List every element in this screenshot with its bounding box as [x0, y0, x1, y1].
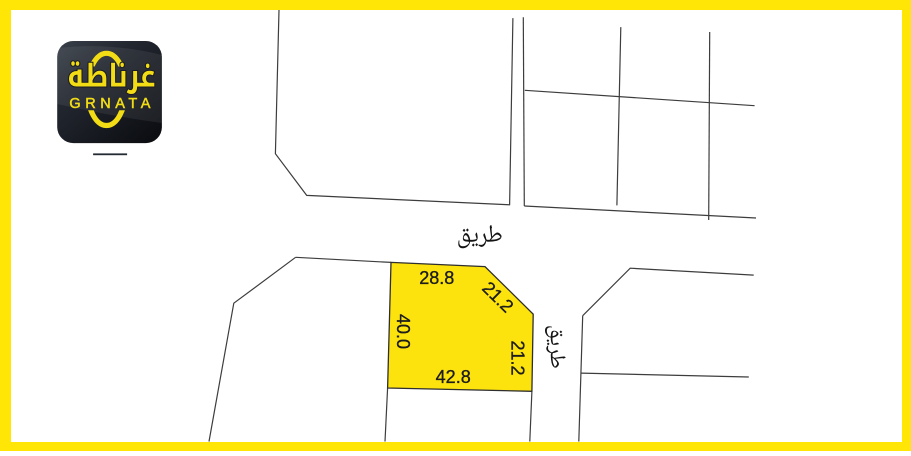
svg-text:GRNATA: GRNATA	[69, 96, 155, 112]
svg-text:40.0: 40.0	[393, 314, 413, 349]
svg-text:28.8: 28.8	[419, 268, 454, 288]
svg-text:21.2: 21.2	[508, 340, 528, 375]
svg-text:42.8: 42.8	[436, 367, 471, 387]
